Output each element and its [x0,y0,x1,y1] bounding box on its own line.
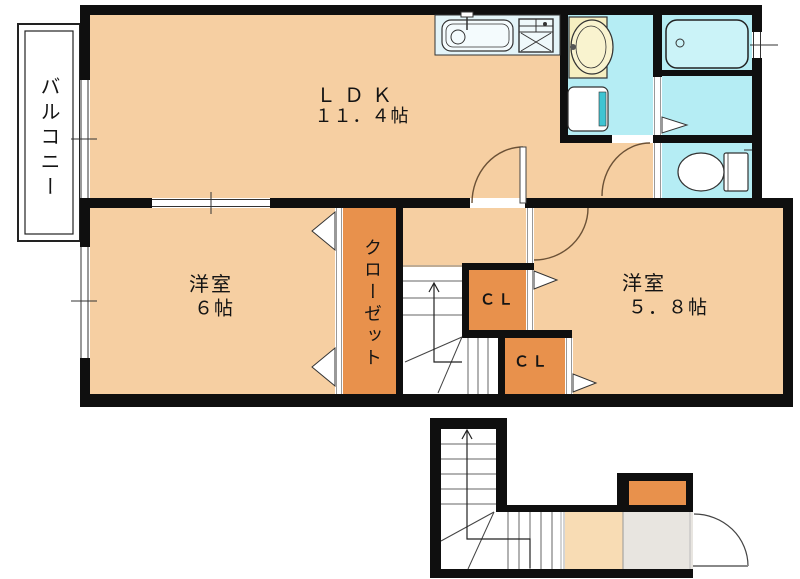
vanity-sink-icon [569,17,613,78]
bedroom58-name-label: 洋室 [622,273,666,293]
bathroom-fixtures [666,20,748,68]
upper-floor [18,5,793,407]
wall-mid-seg1 [90,198,152,208]
door-bedroom58 [526,208,534,263]
wall-right-upper [752,58,762,198]
door-cl-upper [526,270,534,330]
entrance-floor [430,418,748,578]
wall-bathtub-edge [662,70,752,76]
washing-machine-icon [568,87,608,131]
wall-closet-stairs [396,208,403,394]
wall-cl2-top [498,330,572,338]
opening-washroom [612,135,653,143]
stairs-2f-turn-area [462,338,498,394]
wall-kitchen-washroom [560,15,568,135]
window-bathroom-right [750,32,778,58]
entry-dirt-floor [623,512,693,569]
wall-cl2-left [498,338,505,394]
door-closet-sliding [335,208,343,394]
stove-icon [519,19,553,52]
ldk-name-label: ＬＤＫ [316,85,400,105]
wall-left-upper [80,5,90,80]
wall-left-lower [80,358,90,394]
bathtub-icon [666,20,748,68]
ldk-size-label: １１．４帖 [315,108,410,126]
wall-left-mid [80,198,90,247]
door-bath [653,77,662,135]
washroom-fixtures [568,17,613,131]
wall-cl1-top [462,263,534,270]
bedroom6-size-label: ６帖 [194,300,234,319]
bedroom58-size-label: ５．８帖 [628,299,708,318]
closet-cl-lower-label: ＣＬ [514,355,550,370]
opening-ldk-hall [470,198,525,208]
wall-mid-seg2 [270,198,470,208]
entry-door-gap [685,513,693,566]
entry-hall-floor [565,512,623,569]
entry-door-arc [694,514,748,566]
door-toilet [653,143,662,198]
wall-washroom-bath [653,15,662,77]
floor-plan: バルコニー ＬＤＫ １１．４帖 洋室 ６帖 クローゼット ＣＬ ＣＬ 洋室 ５．… [0,0,800,579]
ldk-door-leaf [520,147,526,203]
wall-washroom-bottom [560,135,612,143]
wall-right-top [752,5,762,32]
balcony-label: バルコニー [29,50,69,226]
wall-right-lower [783,198,793,394]
wall-bottom [80,394,793,407]
floor-plan-drawing [0,0,800,579]
door-cl-lower [565,338,573,394]
entry-door [693,514,748,566]
kitchen [435,12,560,55]
closet-label: クローゼット [351,218,391,390]
wall-mid-seg3 [525,198,783,208]
closet-cl-upper-label: ＣＬ [480,293,516,308]
wall-bath-toilet [653,135,762,143]
bedroom6-name-label: 洋室 [189,274,233,294]
wall-cl1-left [462,263,469,338]
wall-top [80,5,762,15]
shoe-cabinet [629,481,686,505]
